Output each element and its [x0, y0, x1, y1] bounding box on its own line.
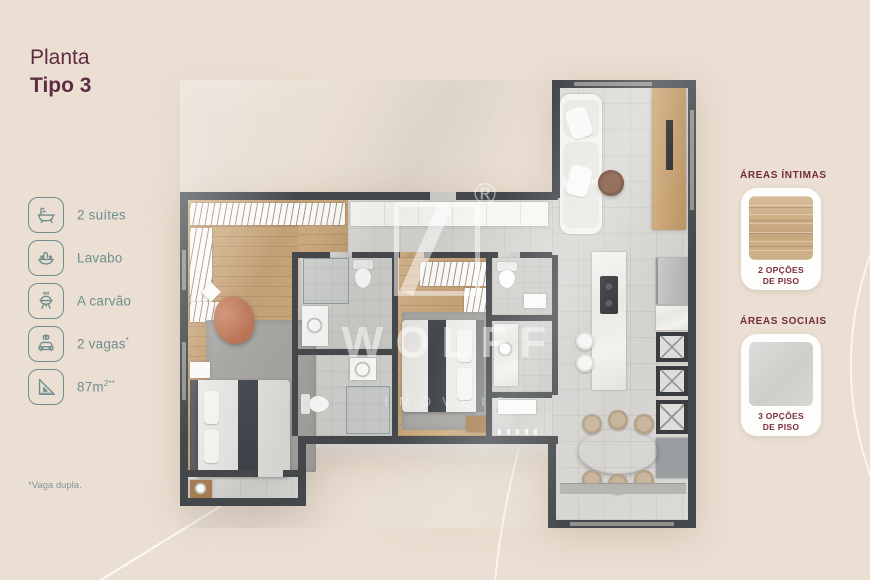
entry-cabinet — [350, 202, 548, 226]
washbasin-3 — [524, 294, 546, 308]
bathtub-icon — [28, 197, 64, 233]
wall — [486, 315, 552, 321]
wall — [180, 498, 305, 506]
floor-plan: ® WOLFF IMÓVEIS — [180, 80, 696, 528]
kitchen-counter — [656, 306, 688, 330]
bed-throw — [238, 380, 258, 477]
amenities-list: 2 suítes Lavabo A carvão 2 — [28, 198, 131, 413]
toilet-2 — [301, 393, 329, 415]
window — [570, 522, 674, 526]
window — [182, 342, 186, 400]
wall — [180, 192, 558, 200]
floor-option-label: 2 OPÇÕES DE PISO — [741, 265, 821, 288]
refrigerator — [656, 258, 690, 304]
shower-2 — [346, 386, 390, 434]
amenity-suites: 2 suítes — [28, 198, 131, 232]
suite2-nightstand — [466, 416, 488, 432]
dining-chair — [582, 414, 602, 434]
vent-grille — [498, 429, 542, 435]
cooktop — [600, 276, 618, 314]
wall — [548, 436, 556, 528]
microwave — [656, 366, 688, 396]
wall — [486, 392, 552, 398]
door-opening — [330, 252, 352, 258]
basin-2 — [355, 362, 370, 377]
washbasin-icon — [28, 240, 64, 276]
dining-bench — [560, 484, 686, 494]
pillow — [457, 368, 472, 400]
wall — [298, 436, 558, 444]
floor-option-label: 3 OPÇÕES DE PISO — [741, 411, 821, 434]
amenity-vagas: 2 vagas* — [28, 327, 131, 361]
master-bed-headboard — [190, 380, 198, 477]
suite2-bed-headboard — [476, 320, 484, 412]
oven — [656, 332, 688, 362]
basin-1 — [307, 318, 322, 333]
closet-rack — [190, 203, 345, 225]
nightstand — [190, 362, 210, 378]
entry-door-opening — [430, 192, 456, 200]
external-hall-shadow — [302, 442, 548, 460]
window — [574, 82, 652, 86]
wall — [552, 80, 560, 198]
amenity-area: 87m2** — [28, 370, 131, 404]
floor-option-card-intimas: 2 OPÇÕES DE PISO — [741, 188, 821, 290]
amenity-label: 2 suítes — [77, 207, 126, 223]
wood-floor-swatch — [749, 196, 813, 260]
wall — [188, 470, 255, 477]
closet-rack-suite2 — [420, 262, 486, 286]
amenity-label: A carvão — [77, 293, 131, 309]
door-opening — [498, 252, 520, 258]
heading-areas-sociais: ÁREAS SOCIAIS — [740, 316, 827, 327]
toilet-1 — [352, 260, 374, 288]
title-line-2: Tipo 3 — [30, 72, 91, 100]
shower-1 — [303, 258, 349, 304]
toilet-3 — [496, 262, 518, 288]
corridor-bench — [498, 400, 536, 414]
door-opening — [400, 252, 424, 258]
dining-chair — [608, 410, 628, 430]
lavabo-basin — [498, 342, 512, 356]
amenity-label: Lavabo — [77, 250, 123, 266]
ruler-icon — [28, 369, 64, 405]
heading-areas-intimas: ÁREAS ÍNTIMAS — [740, 170, 827, 181]
kitchen-cabinet — [656, 438, 688, 478]
window — [690, 110, 694, 210]
page-title: Planta Tipo 3 — [30, 44, 91, 101]
floor-option-card-sociais: 3 OPÇÕES DE PISO — [741, 334, 821, 436]
page: { "header": { "title_line1": "Planta", "… — [0, 0, 870, 580]
amenity-label: 87m2** — [77, 379, 115, 395]
title-line-1: Planta — [30, 44, 91, 72]
grill-icon — [28, 283, 64, 319]
amenity-lavabo: Lavabo — [28, 241, 131, 275]
stool — [576, 332, 594, 350]
wall — [292, 252, 298, 436]
wall — [298, 436, 306, 506]
car-icon — [28, 326, 64, 362]
kitchen-island — [592, 252, 626, 390]
tv — [666, 120, 673, 170]
wall — [392, 252, 398, 436]
wall — [292, 349, 392, 355]
wall — [486, 252, 492, 436]
appliance-tower — [656, 400, 688, 434]
pillow — [204, 391, 219, 424]
dining-table — [578, 428, 658, 474]
stool — [576, 354, 594, 372]
amenity-label: 2 vagas* — [77, 336, 129, 352]
porcelain-floor-swatch — [749, 342, 813, 406]
side-table — [598, 170, 624, 196]
pillow — [204, 430, 219, 463]
wall — [283, 470, 298, 477]
bed-throw — [428, 320, 446, 412]
pillow — [457, 330, 472, 362]
wall — [552, 255, 558, 395]
window — [182, 250, 186, 290]
amenity-carvao: A carvão — [28, 284, 131, 318]
decor-tray — [195, 483, 206, 494]
dining-chair — [634, 414, 654, 434]
footnote: *Vaga dupla. — [28, 480, 82, 491]
